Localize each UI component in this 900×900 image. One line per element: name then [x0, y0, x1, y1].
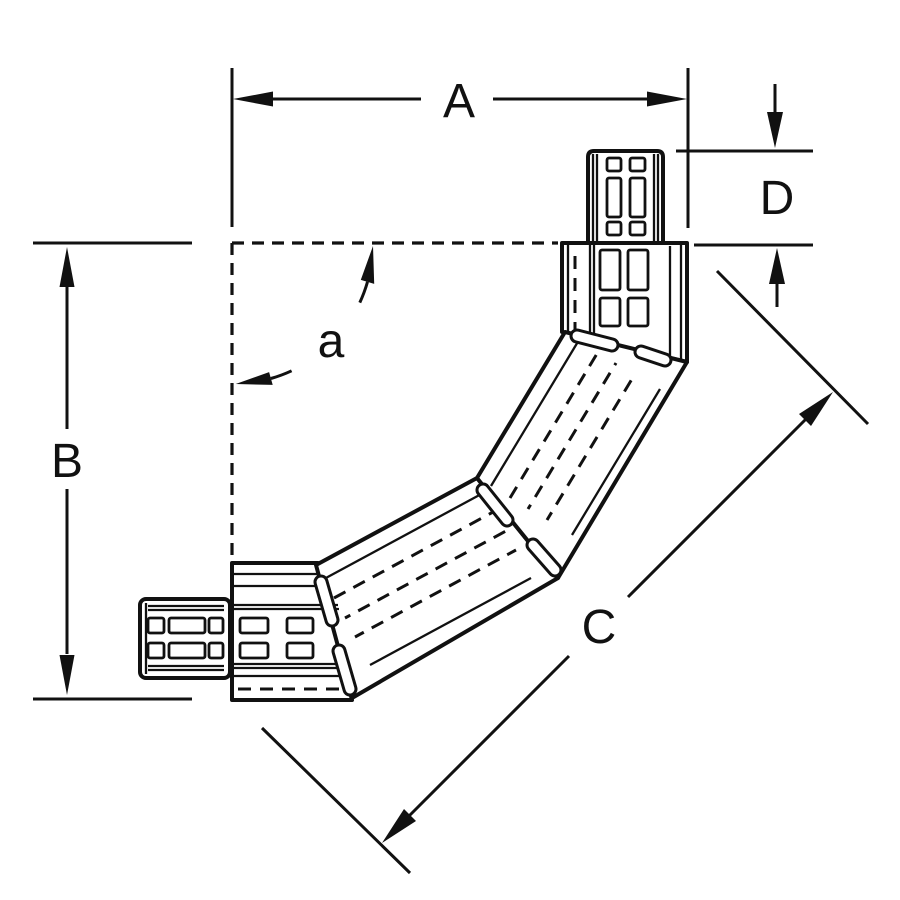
left-connector — [140, 599, 230, 678]
dimension-d-label: D — [760, 172, 795, 225]
dimension-angle: a — [236, 246, 375, 385]
dimension-c-label: C — [582, 601, 617, 654]
arrowhead-down — [767, 112, 783, 148]
arrowhead-up — [60, 247, 75, 287]
perforation-slot — [209, 618, 223, 633]
arrowhead-up — [769, 248, 785, 284]
perforation-slot — [630, 178, 645, 217]
extension-line — [717, 271, 868, 424]
perforation-slot — [148, 643, 164, 658]
arrowhead-to-vertical — [236, 372, 273, 385]
perforation-slot — [287, 643, 313, 658]
perforation-slot — [607, 222, 621, 235]
extension-line — [262, 728, 410, 873]
arrowhead-left — [233, 92, 273, 107]
dimension-b-label: B — [51, 435, 83, 488]
perforation-slot — [600, 298, 620, 326]
perforation-slot — [607, 178, 621, 217]
dimension-d: D — [676, 84, 813, 307]
dimension-a-label: A — [443, 75, 475, 128]
angle-arc — [271, 371, 292, 379]
top-connector-body — [588, 151, 663, 250]
perforation-slot — [287, 618, 313, 633]
perforation-slot — [240, 643, 268, 658]
perforation-slot — [240, 618, 268, 633]
perforation-slot — [630, 222, 645, 235]
perforation-slot — [169, 643, 205, 658]
arrowhead-right — [647, 92, 687, 107]
perforation-slot — [628, 250, 648, 290]
perforation-slot — [209, 643, 223, 658]
perforation-slot — [628, 298, 648, 326]
arrowhead-down — [60, 655, 75, 695]
perforation-slot — [169, 618, 205, 633]
perforation-slot — [148, 618, 164, 633]
angle-arc — [360, 282, 368, 303]
angle-label: a — [318, 315, 345, 368]
arrowhead-to-horizontal — [361, 246, 374, 284]
perforation-slot — [630, 158, 645, 171]
technical-drawing-canvas: A B C D a — [0, 0, 900, 900]
riser-bend-diagram: A B C D a — [0, 0, 900, 900]
top-connector — [588, 151, 663, 250]
perforation-slot — [600, 250, 620, 290]
perforation-slot — [607, 158, 621, 171]
